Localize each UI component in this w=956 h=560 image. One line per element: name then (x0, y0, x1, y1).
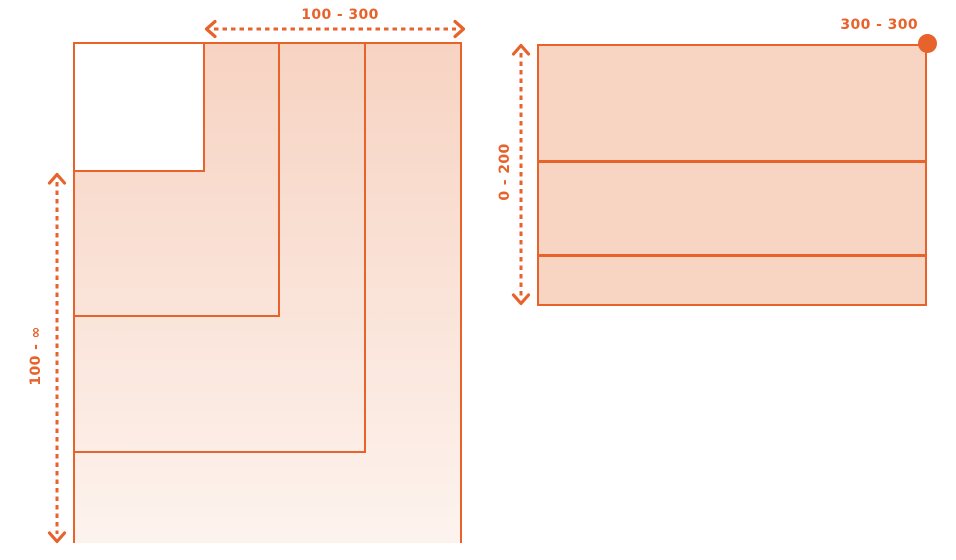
corner-dot-icon (918, 34, 937, 53)
height-range-arrow-icon (50, 175, 65, 542)
height-range-arrow-right-icon (514, 46, 529, 304)
min-size-box (73, 42, 205, 172)
size-range-diagram: 100 - 300 100 - ∞ 300 - 300 0 - 200 (0, 0, 956, 560)
width-range-label: 100 - 300 (240, 7, 440, 23)
height-range-label: 100 - ∞ (28, 326, 44, 385)
fixed-width-label: 300 - 300 (798, 17, 918, 33)
width-range-arrow-icon (207, 22, 464, 37)
height-range-label-right: 0 - 200 (497, 143, 513, 200)
row-divider (539, 160, 925, 163)
row-divider (539, 254, 925, 257)
fixed-width-box (537, 44, 927, 306)
